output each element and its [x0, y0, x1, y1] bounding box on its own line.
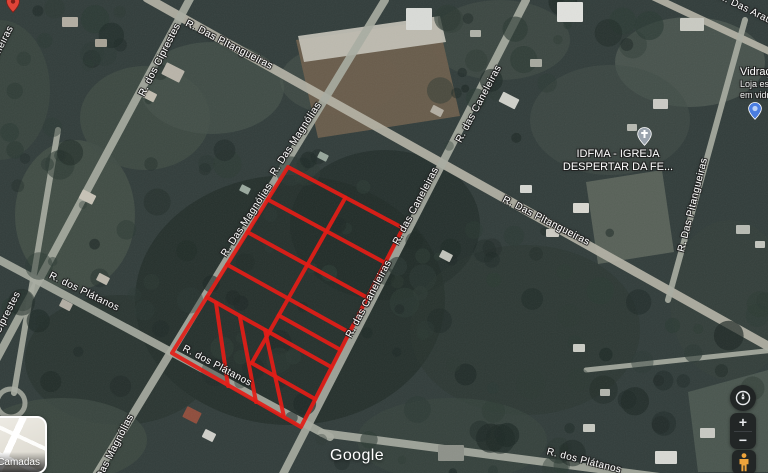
google-logo[interactable]: Google [330, 447, 384, 465]
store-poi-label[interactable]: Vidraçar Loja espe em vidro [740, 66, 768, 100]
church-name-line1: IDFMA - IGREJA [576, 148, 659, 160]
store-name: Vidraçar [740, 66, 768, 79]
layers-control[interactable]: Camadas [0, 416, 47, 473]
zoom-controls: + − [730, 413, 756, 449]
zoom-in-button[interactable]: + [730, 413, 756, 431]
satellite-map[interactable]: R. dos CiprestesR. Das PitangueirasR. Da… [0, 0, 768, 473]
store-sub-line1: Loja espe [740, 79, 768, 90]
zoom-out-button[interactable]: − [730, 432, 756, 450]
store-pin-icon[interactable] [748, 102, 762, 125]
church-poi-label[interactable]: IDFMA - IGREJA DESPERTAR DA FE... [533, 148, 703, 174]
red-map-marker-icon[interactable] [6, 0, 20, 18]
church-name-line2: DESPERTAR DA FE... [563, 161, 673, 173]
compass-button[interactable] [730, 385, 756, 411]
noise-texture [0, 0, 768, 473]
store-sub-line2: em vidro [740, 90, 768, 101]
pegman-icon [738, 453, 750, 472]
layers-label: Camadas [0, 457, 40, 468]
map-canvas[interactable] [0, 0, 768, 473]
pegman-button[interactable] [732, 450, 756, 473]
compass-icon [734, 389, 752, 407]
